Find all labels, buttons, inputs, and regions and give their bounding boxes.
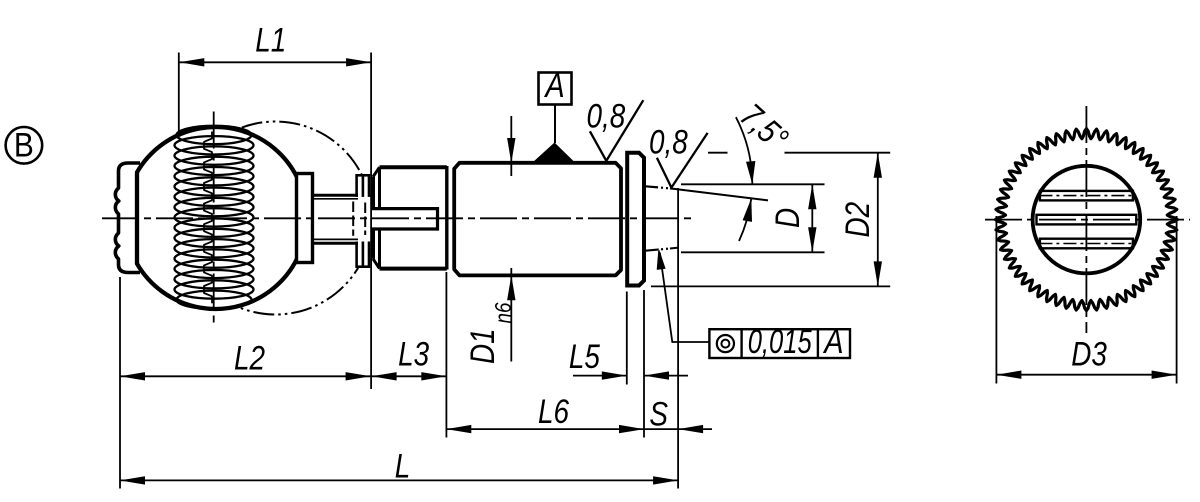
svg-text:D: D	[768, 208, 806, 228]
svg-text:L1: L1	[255, 21, 286, 59]
svg-text:D2: D2	[838, 202, 876, 238]
svg-text:L5: L5	[569, 337, 601, 375]
svg-text:0,015: 0,015	[748, 323, 812, 361]
svg-text:L6: L6	[538, 393, 570, 431]
svg-text:S: S	[649, 395, 668, 433]
svg-text:L3: L3	[398, 335, 430, 373]
svg-text:0,8: 0,8	[649, 123, 688, 161]
svg-text:D3: D3	[1071, 335, 1107, 373]
svg-text:L: L	[395, 447, 411, 485]
svg-text:B: B	[14, 126, 34, 164]
svg-text:A: A	[544, 66, 565, 105]
svg-text:A: A	[822, 322, 843, 361]
svg-text:0,8: 0,8	[587, 97, 626, 135]
svg-text:L2: L2	[234, 339, 265, 377]
